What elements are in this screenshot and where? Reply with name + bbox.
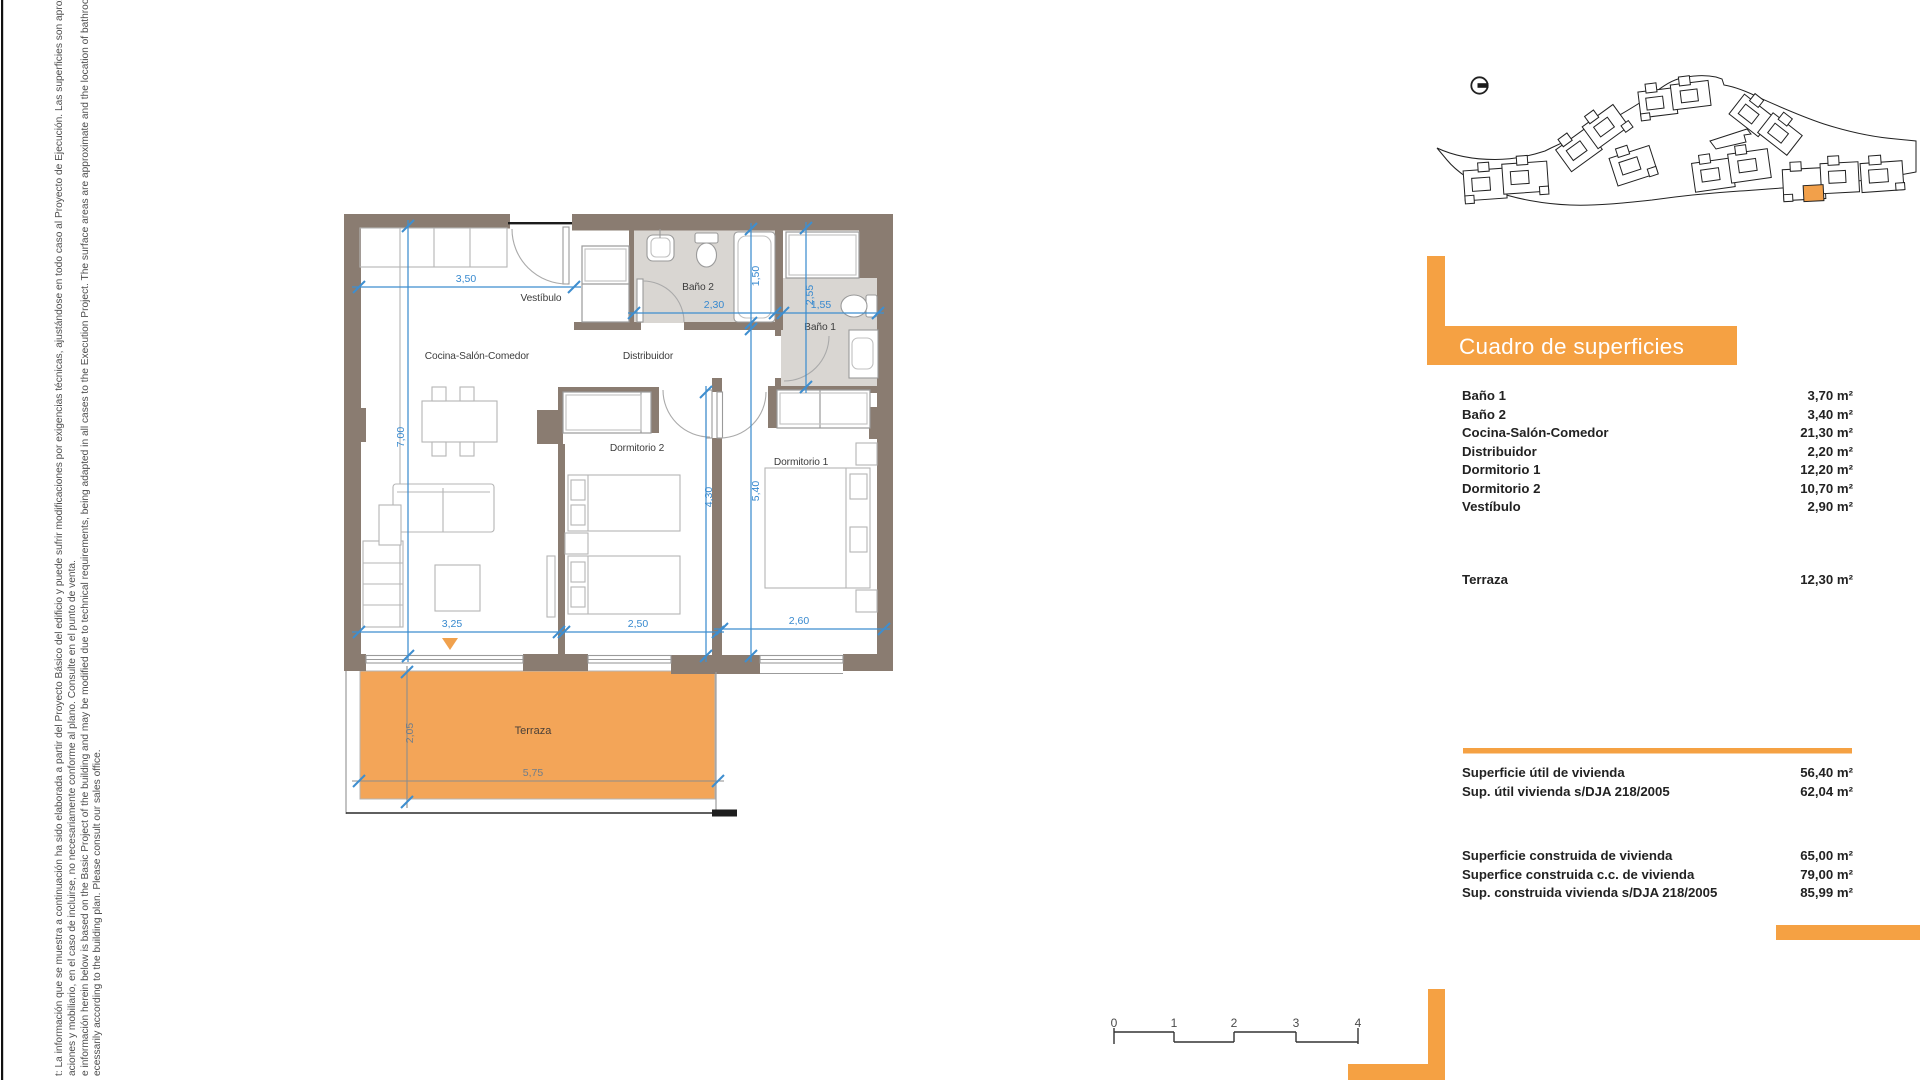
svg-text:Sup. útil vivienda s/DJA 218/2: Sup. útil vivienda s/DJA 218/2005 [1462,784,1670,799]
svg-text:4,30: 4,30 [703,487,715,508]
svg-text:5,75: 5,75 [523,767,544,779]
svg-text:2,55: 2,55 [804,285,816,306]
svg-text:21,30 m²: 21,30 m² [1800,425,1853,440]
svg-text:56,40 m²: 56,40 m² [1800,765,1853,780]
svg-text:3,50: 3,50 [456,273,477,285]
svg-text:Terraza: Terraza [515,725,553,737]
svg-text:aciones y mobiliario, en el ca: aciones y mobiliario, en el caso de incl… [67,560,78,1076]
svg-text:1,50: 1,50 [750,266,762,287]
svg-text:4: 4 [1355,1016,1362,1030]
svg-text:3,40 m²: 3,40 m² [1808,407,1854,422]
svg-text:3: 3 [1293,1016,1300,1030]
svg-text:Vestíbulo: Vestíbulo [1462,499,1521,514]
svg-text:7,00: 7,00 [395,427,407,448]
svg-text:0: 0 [1111,1016,1118,1030]
svg-text:Cuadro de superficies: Cuadro de superficies [1459,334,1684,359]
svg-text:Superficie construida de vivie: Superficie construida de vivienda [1462,848,1673,863]
svg-text:Dormitorio 1: Dormitorio 1 [1462,462,1540,477]
svg-text:Sup. construida vivienda s/DJA: Sup. construida vivienda s/DJA 218/2005 [1462,885,1717,900]
svg-text:Cocina-Salón-Comedor: Cocina-Salón-Comedor [425,351,530,362]
svg-text:79,00 m²: 79,00 m² [1800,867,1853,882]
svg-text:65,00 m²: 65,00 m² [1800,848,1853,863]
svg-text:e información herein below is: e información herein below is based on t… [80,0,91,1076]
svg-text:t: La información que se muest: t: La información que se muestra a conti… [54,0,65,1076]
svg-text:2,50: 2,50 [628,618,649,630]
svg-text:Baño 1: Baño 1 [1462,388,1506,403]
svg-text:Dormitorio 1: Dormitorio 1 [774,457,829,468]
svg-text:10,70 m²: 10,70 m² [1800,481,1853,496]
svg-text:Dormitorio 2: Dormitorio 2 [1462,481,1540,496]
svg-text:ecessarily according to the bu: ecessarily according to the building pla… [92,749,103,1076]
svg-text:12,30 m²: 12,30 m² [1800,572,1853,587]
svg-text:Baño 1: Baño 1 [804,322,836,333]
svg-text:Terraza: Terraza [1462,572,1509,587]
svg-text:Cocina-Salón-Comedor: Cocina-Salón-Comedor [1462,425,1609,440]
svg-text:Superfice construida c.c. de v: Superfice construida c.c. de vivienda [1462,867,1695,882]
svg-text:2,90 m²: 2,90 m² [1808,499,1854,514]
svg-text:Baño 2: Baño 2 [1462,407,1506,422]
svg-text:Superficie útil de vivienda: Superficie útil de vivienda [1462,765,1625,780]
svg-text:62,04 m²: 62,04 m² [1800,784,1853,799]
svg-text:Vestíbulo: Vestíbulo [520,293,561,304]
svg-text:1: 1 [1171,1016,1178,1030]
svg-text:12,20 m²: 12,20 m² [1800,462,1853,477]
svg-text:5,40: 5,40 [750,481,762,502]
svg-text:Dormitorio 2: Dormitorio 2 [610,443,665,454]
svg-text:Baño 2: Baño 2 [682,282,714,293]
svg-text:2,30: 2,30 [704,299,725,311]
svg-text:2,60: 2,60 [789,615,810,627]
svg-text:3,25: 3,25 [442,618,463,630]
svg-text:85,99 m²: 85,99 m² [1800,885,1853,900]
svg-text:Distribuidor: Distribuidor [623,351,674,362]
svg-text:Distribuidor: Distribuidor [1462,444,1537,459]
svg-text:2,05: 2,05 [404,723,416,744]
svg-text:2,20 m²: 2,20 m² [1808,444,1854,459]
svg-text:3,70 m²: 3,70 m² [1808,388,1854,403]
svg-text:2: 2 [1231,1016,1238,1030]
